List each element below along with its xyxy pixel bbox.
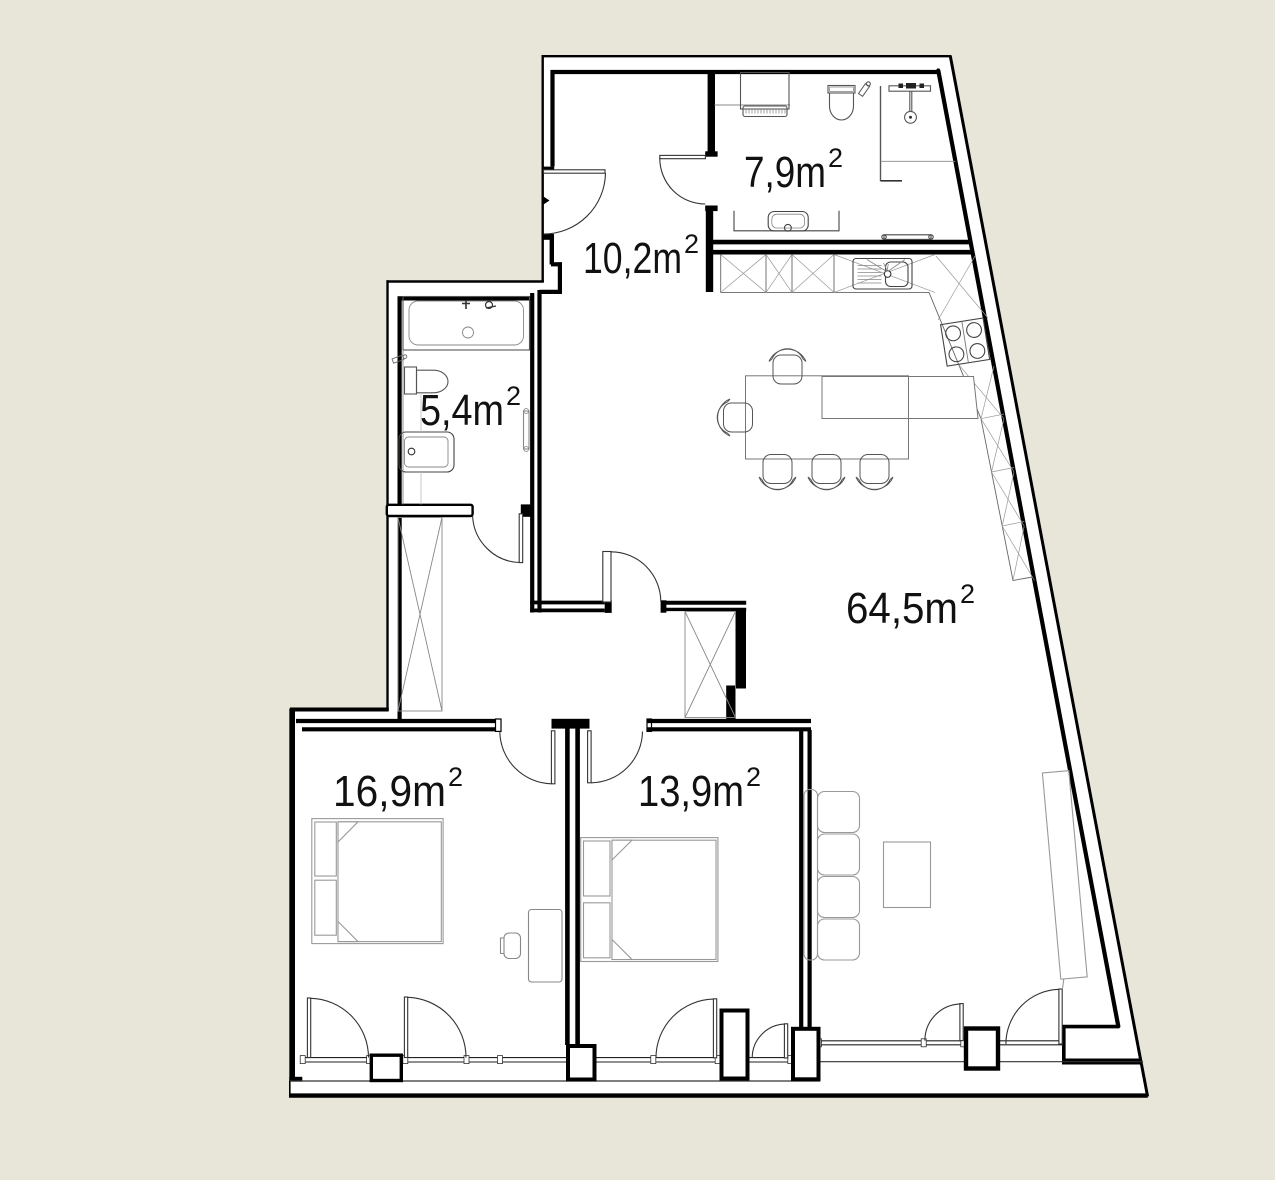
svg-text:2: 2 (960, 579, 975, 609)
svg-text:2: 2 (448, 762, 463, 792)
svg-text:13,9m: 13,9m (638, 767, 744, 816)
svg-text:64,5m: 64,5m (846, 584, 958, 633)
svg-text:10,2m: 10,2m (583, 234, 682, 283)
svg-text:7,9m: 7,9m (744, 148, 826, 197)
svg-text:16,9m: 16,9m (333, 767, 446, 816)
svg-text:5,4m: 5,4m (420, 386, 504, 435)
svg-text:2: 2 (506, 381, 521, 411)
svg-text:2: 2 (828, 143, 843, 173)
svg-text:2: 2 (684, 229, 699, 259)
svg-text:2: 2 (746, 762, 761, 792)
